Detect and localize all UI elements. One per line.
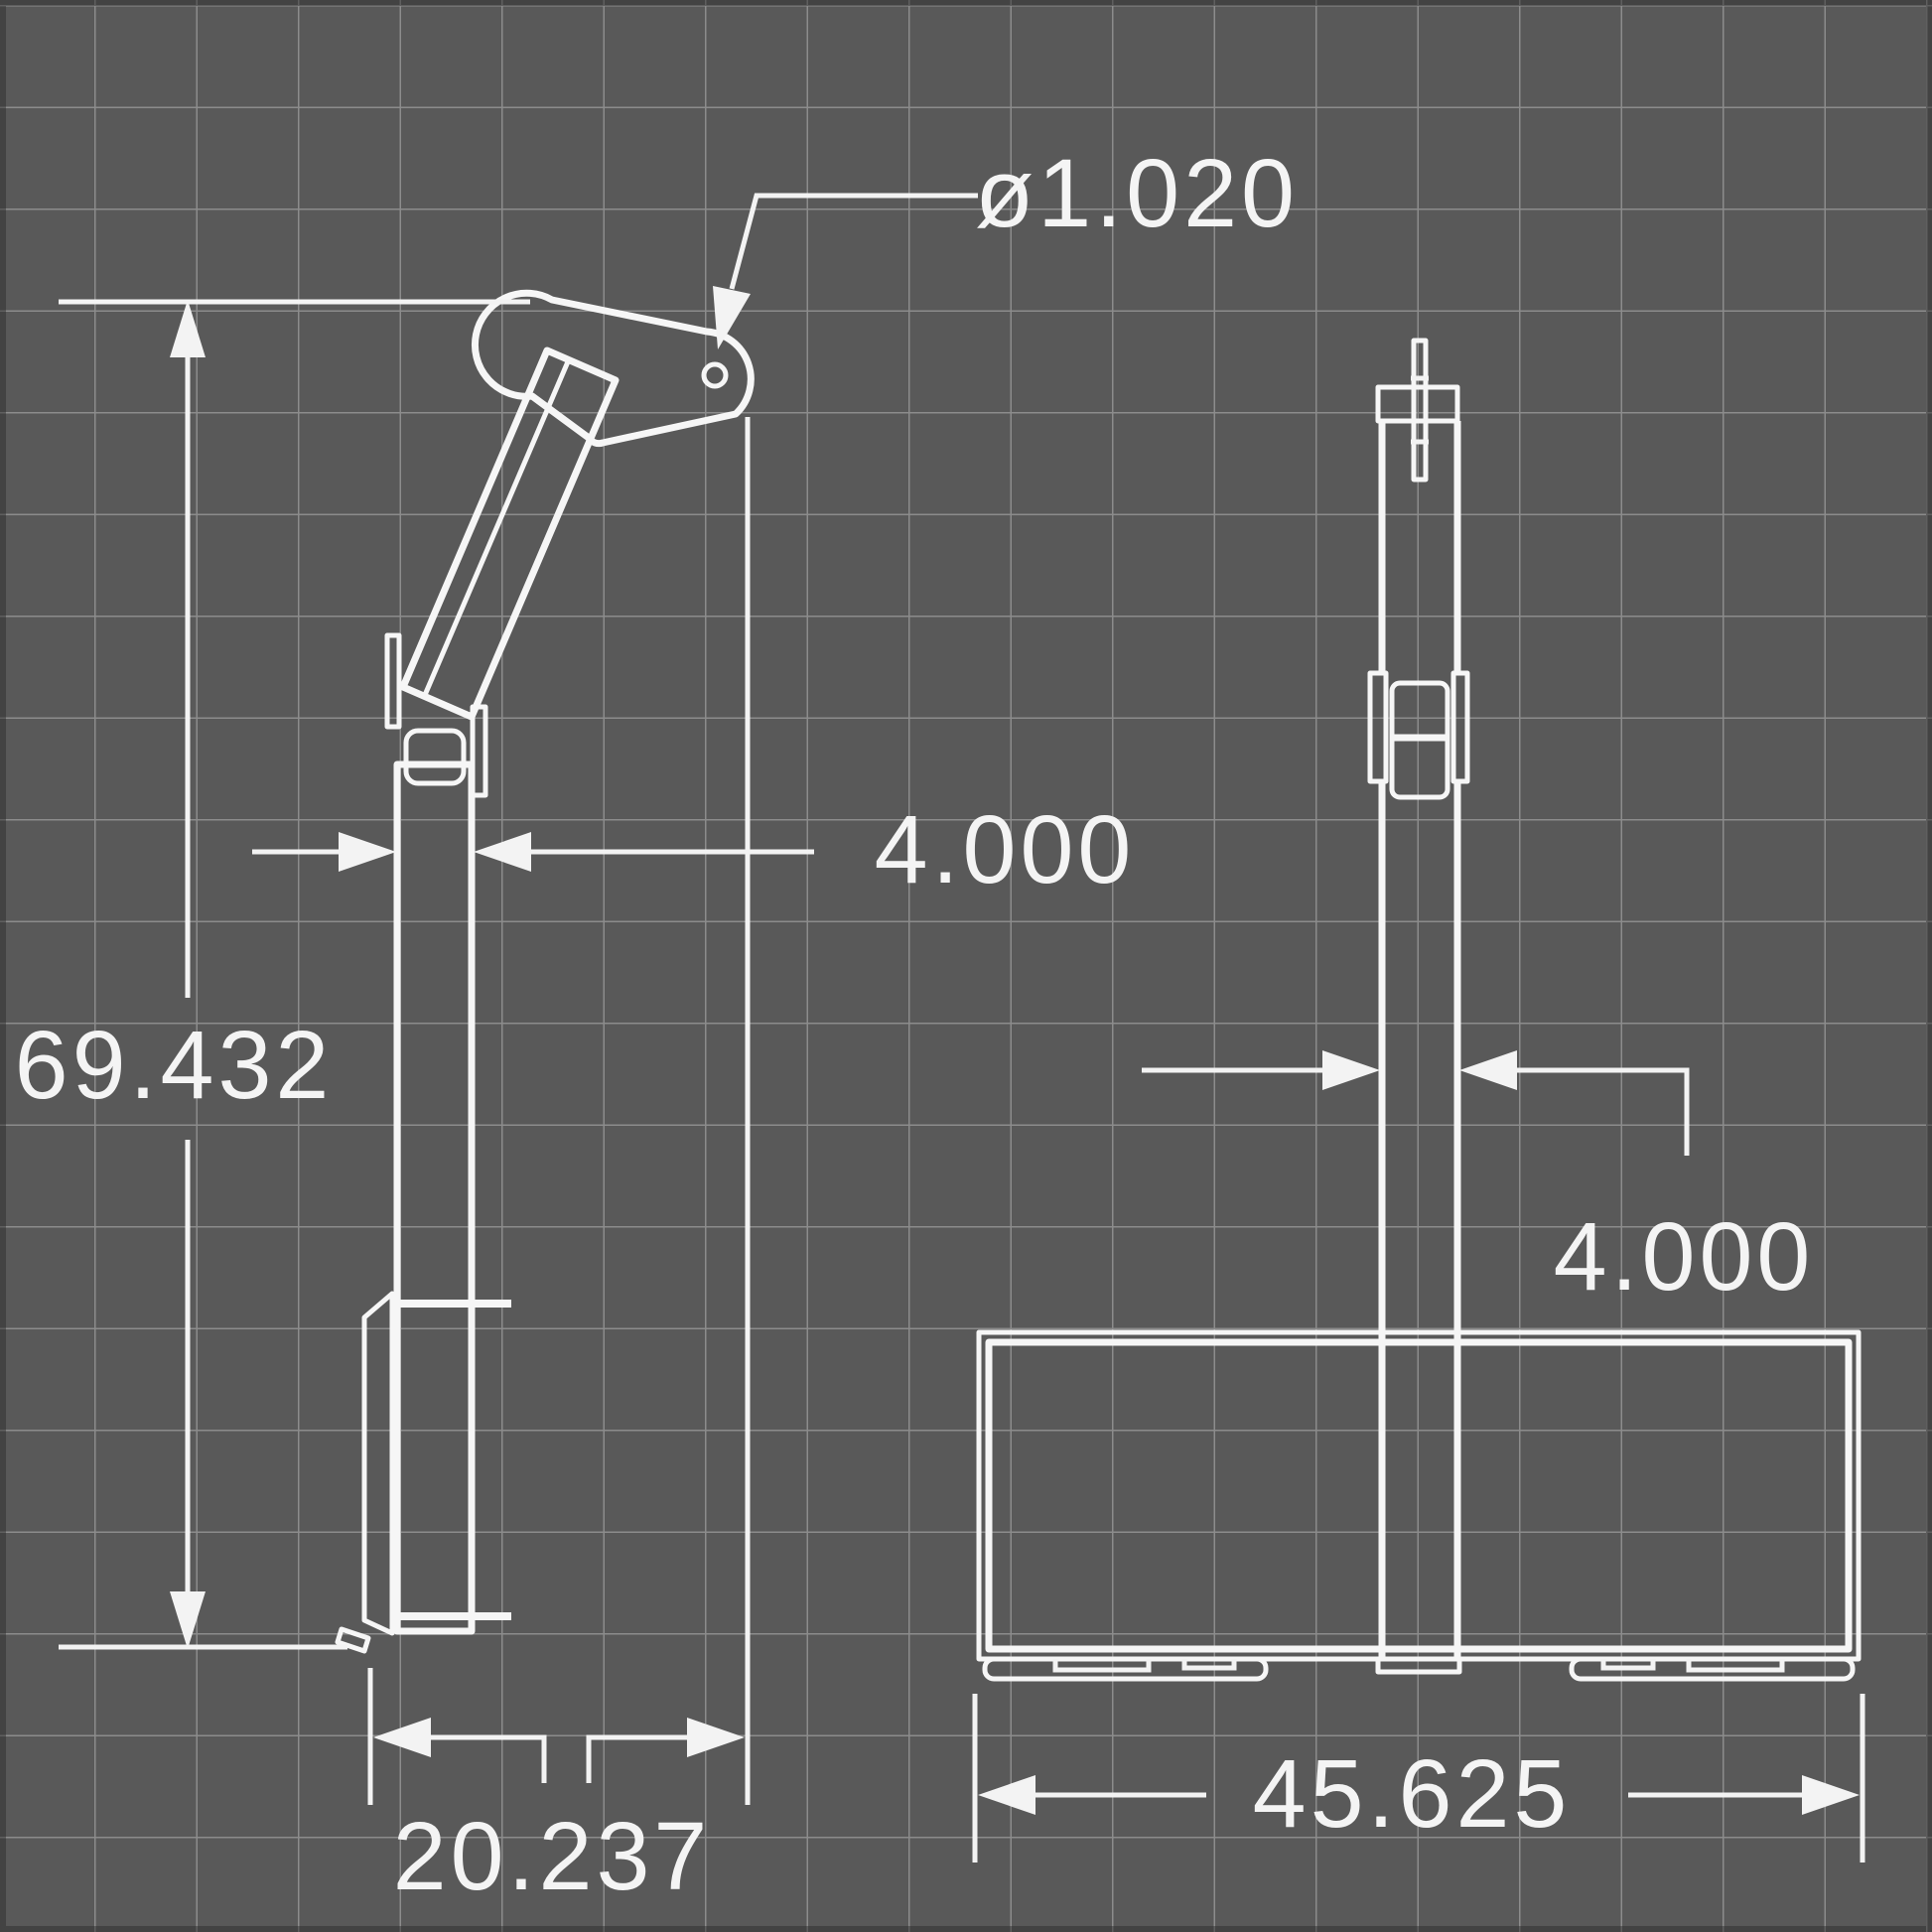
side-post-width-label: 4.000 (875, 795, 1136, 903)
dimension-drawing-svg: 69.432 4.000 ø1.020 20.237 (0, 0, 1932, 1932)
base-depth-label: 20.237 (393, 1802, 712, 1910)
grid-background (0, 0, 1932, 1932)
overall-height-label: 69.432 (15, 1011, 334, 1119)
technical-drawing-canvas: 69.432 4.000 ø1.020 20.237 (0, 0, 1932, 1932)
base-width-label: 45.625 (1253, 1739, 1572, 1848)
front-post-width-label: 4.000 (1554, 1202, 1815, 1311)
hole-diameter-label: ø1.020 (975, 139, 1299, 247)
